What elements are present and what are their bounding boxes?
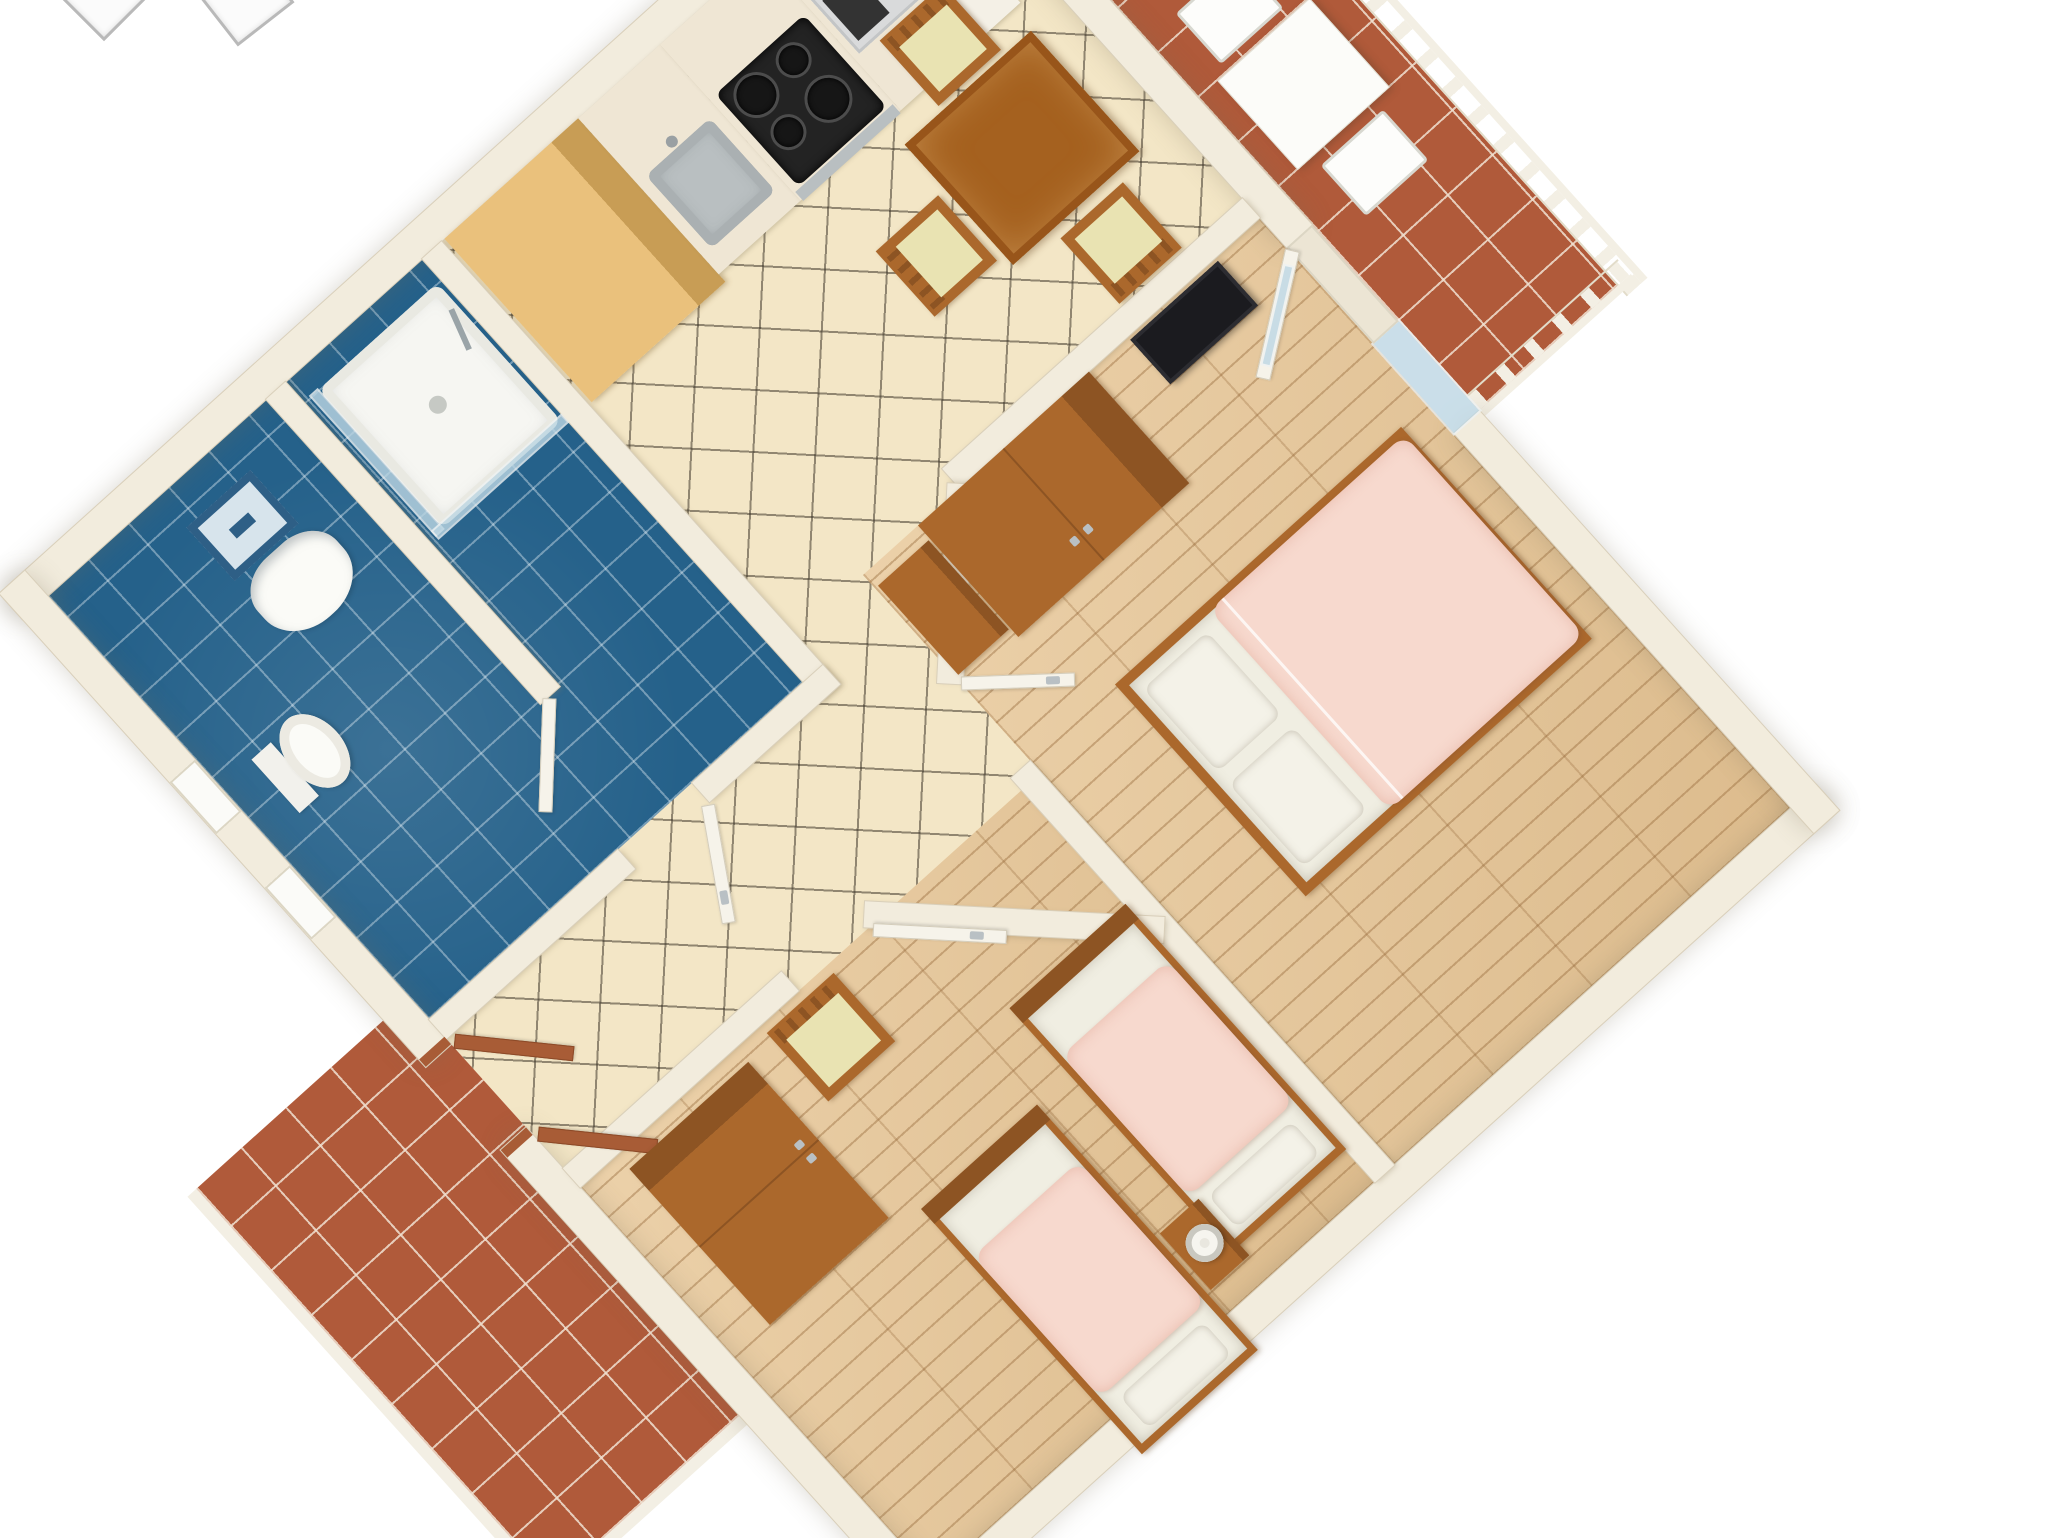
compass-spike-right [193, 0, 294, 47]
compass-spike-left [59, 0, 150, 41]
floor-plan-render [0, 0, 2048, 1538]
apartment-plan [0, 0, 2013, 1538]
